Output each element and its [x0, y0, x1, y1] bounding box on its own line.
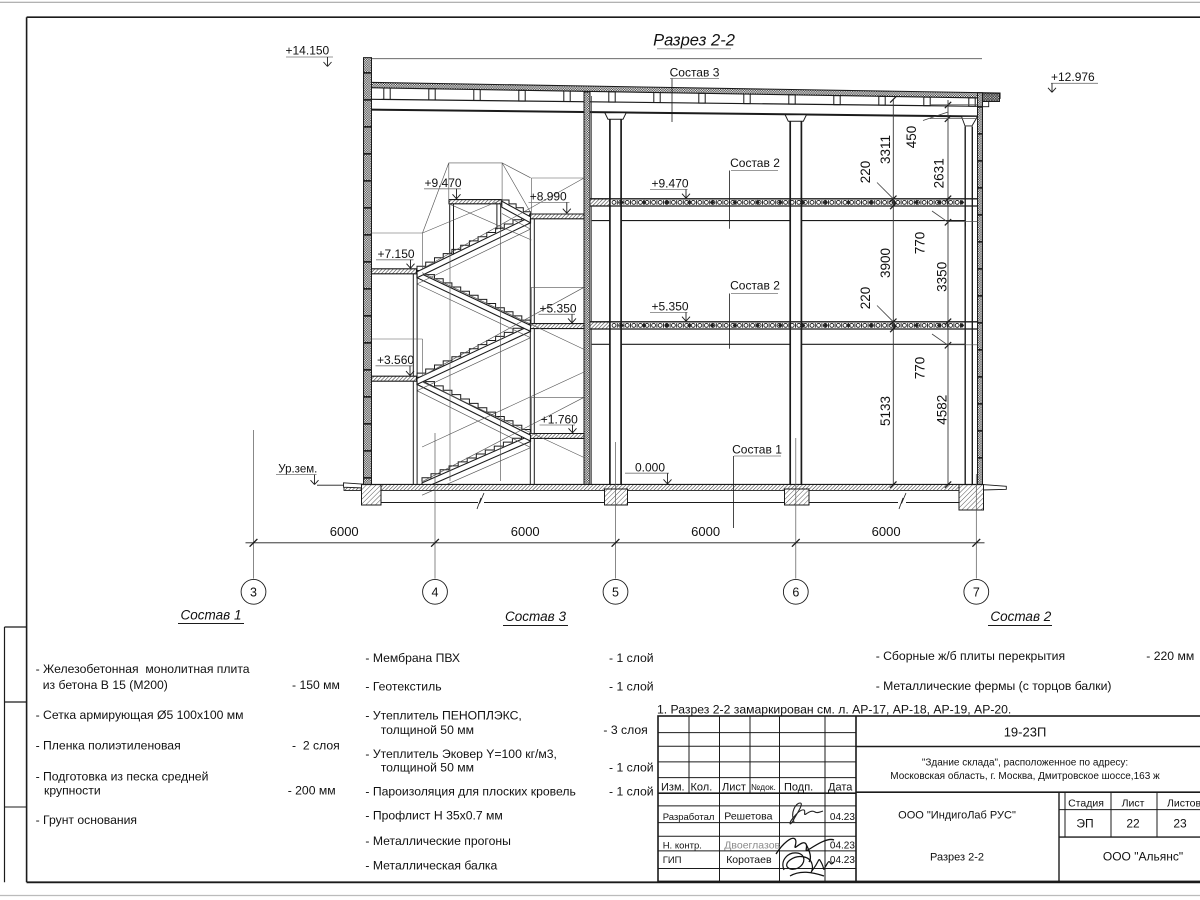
svg-text:- 3 слоя: - 3 слоя [603, 723, 647, 737]
svg-text:Коротаев: Коротаев [726, 854, 772, 866]
svg-text:Дата: Дата [828, 782, 853, 794]
svg-text:Изм.: Изм. [661, 782, 685, 794]
svg-text:- Металлические фермы (с торцо: - Металлические фермы (с торцов балки) [876, 679, 1112, 693]
svg-text:+8.990: +8.990 [530, 190, 567, 204]
svg-text:№док.: №док. [751, 782, 776, 792]
svg-text:770: 770 [913, 232, 928, 255]
svg-text:+14.150: +14.150 [286, 43, 330, 57]
svg-text:220: 220 [858, 287, 873, 310]
svg-text:+3.560: +3.560 [377, 353, 414, 367]
svg-text:толщиной 50 мм: толщиной 50 мм [381, 761, 474, 775]
svg-text:+5.350: +5.350 [540, 301, 577, 315]
svg-text:- 150 мм: - 150 мм [292, 678, 340, 692]
svg-text:Лист: Лист [1122, 798, 1145, 810]
svg-text:+9.470: +9.470 [652, 176, 689, 190]
svg-text:19-23П: 19-23П [1004, 725, 1047, 740]
svg-text:Лист: Лист [722, 782, 746, 794]
svg-text:крупности: крупности [44, 784, 101, 798]
svg-text:из бетона В 15 (М200): из бетона В 15 (М200) [43, 678, 168, 692]
svg-text:- Утеплитель Эковер Y=100 кг/м: - Утеплитель Эковер Y=100 кг/м3, [365, 747, 557, 761]
svg-text:3900: 3900 [878, 248, 893, 278]
svg-text:ГИП: ГИП [663, 855, 682, 866]
svg-text:- 200 мм: - 200 мм [288, 784, 336, 798]
svg-text:- Подготовка из песка средней: - Подготовка из песка средней [36, 770, 209, 784]
svg-text:04.23: 04.23 [830, 855, 855, 866]
svg-text:Подп.: Подп. [784, 782, 813, 794]
svg-text:- Сетка армирующая Ø5 100x100: - Сетка армирующая Ø5 100x100 мм [36, 708, 244, 722]
svg-text:4: 4 [432, 585, 439, 599]
svg-text:Стадия: Стадия [1068, 798, 1104, 810]
svg-text:5133: 5133 [878, 396, 893, 426]
svg-text:6000: 6000 [330, 524, 359, 539]
svg-text:Разработал: Разработал [663, 812, 715, 823]
svg-text:Ур.зем.: Ур.зем. [278, 463, 317, 475]
svg-text:Листов: Листов [1167, 798, 1200, 810]
svg-text:- Грунт основания: - Грунт основания [36, 813, 137, 827]
svg-text:3350: 3350 [934, 262, 949, 292]
svg-text:220: 220 [858, 161, 873, 184]
svg-text:Кол.: Кол. [691, 782, 713, 794]
svg-text:6000: 6000 [872, 524, 901, 539]
svg-text:Московская область, г. Москва,: Московская область, г. Москва, Дмитровск… [890, 770, 1160, 782]
svg-text:- Мембрана ПВХ: - Мембрана ПВХ [365, 651, 460, 665]
svg-text:6000: 6000 [511, 524, 540, 539]
svg-text:Состав 3: Состав 3 [670, 66, 720, 80]
svg-text:- Геотекстиль: - Геотекстиль [365, 680, 441, 694]
svg-text:Состав 2: Состав 2 [990, 609, 1051, 624]
svg-text:Разрез 2-2: Разрез 2-2 [653, 31, 735, 49]
svg-text:+9.470: +9.470 [425, 176, 462, 190]
svg-text:Состав 2: Состав 2 [730, 156, 780, 170]
svg-text:"Здание склада", расположенное: "Здание склада", расположенное по адресу… [922, 758, 1128, 769]
svg-text:+7.150: +7.150 [378, 247, 415, 261]
svg-text:- Железобетонная монолитная п: - Железобетонная монолитная плита [36, 662, 250, 676]
svg-text:Разрез 2-2: Разрез 2-2 [930, 852, 984, 864]
svg-text:6000: 6000 [691, 524, 720, 539]
svg-text:- Сборные ж/б плиты перекрытия: - Сборные ж/б плиты перекрытия [876, 649, 1065, 663]
svg-text:- Профлист Н 35x0.7 мм: - Профлист Н 35x0.7 мм [365, 809, 502, 823]
svg-text:Состав 1: Состав 1 [181, 608, 242, 623]
svg-text:- 2 слоя: - 2 слоя [292, 739, 340, 753]
svg-text:7: 7 [973, 585, 980, 599]
svg-text:+1.760: +1.760 [541, 412, 578, 426]
svg-text:- Пленка полиэтиленовая: - Пленка полиэтиленовая [36, 739, 181, 753]
svg-text:- Утеплитель ПЕНОПЛЭКС,: - Утеплитель ПЕНОПЛЭКС, [365, 709, 521, 723]
svg-text:Двоеглазов: Двоеглазов [724, 840, 780, 852]
svg-text:- 1 слой: - 1 слой [609, 785, 654, 799]
svg-text:- 220 мм: - 220 мм [1146, 649, 1194, 663]
svg-text:770: 770 [913, 357, 928, 380]
svg-text:- Пароизоляция для плоских кро: - Пароизоляция для плоских кровель [365, 785, 575, 799]
svg-text:1. Разрез 2-2 замаркирован см.: 1. Разрез 2-2 замаркирован см. л. АР-17,… [657, 703, 1011, 717]
svg-text:6: 6 [792, 585, 799, 599]
svg-text:23: 23 [1173, 817, 1187, 831]
svg-text:22: 22 [1126, 817, 1140, 831]
svg-text:- 1 слой: - 1 слой [609, 680, 654, 694]
svg-text:4582: 4582 [934, 395, 949, 425]
svg-text:- Металлическая балка: - Металлическая балка [365, 859, 497, 873]
svg-text:- Металлические прогоны: - Металлические прогоны [365, 834, 511, 848]
svg-text:2631: 2631 [932, 158, 947, 188]
svg-text:- 1 слой: - 1 слой [609, 761, 654, 775]
svg-text:Состав 3: Состав 3 [505, 609, 566, 624]
svg-text:толщиной 50 мм: толщиной 50 мм [381, 723, 474, 737]
svg-text:5: 5 [612, 585, 619, 599]
svg-text:04.23: 04.23 [830, 812, 855, 823]
svg-text:3: 3 [250, 585, 257, 599]
svg-text:Состав 1: Состав 1 [732, 443, 782, 457]
svg-text:04.23: 04.23 [830, 841, 855, 852]
svg-text:Решетова: Решетова [724, 811, 772, 823]
svg-text:+12.976: +12.976 [1051, 70, 1095, 84]
svg-text:Н. контр.: Н. контр. [663, 841, 702, 852]
svg-text:ООО "ИндигоЛаб РУС": ООО "ИндигоЛаб РУС" [898, 810, 1016, 822]
svg-text:3311: 3311 [878, 135, 893, 164]
svg-text:ЭП: ЭП [1076, 817, 1093, 831]
svg-text:0.000: 0.000 [635, 460, 665, 474]
svg-text:450: 450 [904, 126, 919, 149]
svg-text:Состав 2: Состав 2 [730, 279, 780, 293]
svg-text:ООО "Альянс": ООО "Альянс" [1103, 850, 1183, 864]
svg-text:+5.350: +5.350 [652, 299, 689, 313]
svg-text:- 1 слой: - 1 слой [609, 651, 654, 665]
